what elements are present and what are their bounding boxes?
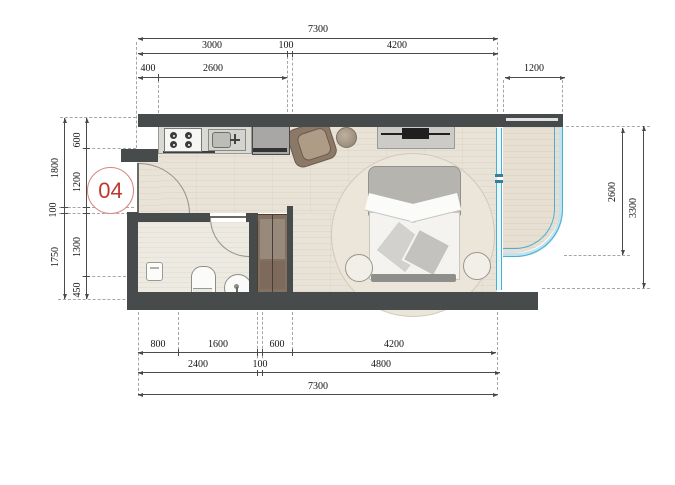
- dim-label: 400: [140, 64, 157, 74]
- burner-icon: [170, 141, 177, 148]
- floor-plan: 04 7300 3000 100 4200 400 2600 1200 1800…: [0, 0, 675, 485]
- extension-line: [60, 117, 136, 118]
- sliding-window-lower: [496, 182, 502, 290]
- heater-panel: [150, 267, 159, 269]
- dim-label: 7300: [307, 382, 329, 392]
- dim-tick: [262, 349, 263, 356]
- dim-label: 4200: [383, 340, 405, 350]
- dim-label: 600: [73, 132, 83, 149]
- dim-tick: [262, 369, 263, 376]
- wall-left-stub: [121, 149, 158, 162]
- dim-label: 4800: [370, 360, 392, 370]
- armchair-cushion: [296, 126, 333, 162]
- kitchen-sink: [208, 129, 246, 151]
- wall-top-balcony-slit: [506, 118, 558, 121]
- dim-tick: [83, 207, 90, 208]
- extension-line: [503, 80, 504, 112]
- dim-label: 800: [150, 340, 167, 350]
- gas-stove: [164, 128, 202, 152]
- refrigerator-handle: [253, 148, 287, 152]
- dim-tick: [83, 213, 90, 214]
- dim-label: 2600: [202, 64, 224, 74]
- dim-label: 100: [278, 41, 295, 51]
- wall-wardrobe-left: [249, 213, 257, 292]
- dim-label: 1200: [73, 171, 83, 193]
- bed-foot-runner: [371, 274, 456, 282]
- dim-label: 4200: [386, 41, 408, 51]
- dim-line-top-overall: [138, 38, 498, 39]
- extension-line: [287, 56, 288, 112]
- dim-label: 1600: [207, 340, 229, 350]
- dim-line-left-inner: [86, 118, 87, 299]
- dim-tick: [178, 349, 179, 356]
- dim-tick: [287, 50, 288, 57]
- extension-line: [58, 213, 134, 214]
- dim-tick: [257, 349, 258, 356]
- dim-label: 600: [269, 340, 286, 350]
- dim-label: 100: [252, 360, 269, 370]
- dim-label: 7300: [307, 25, 329, 35]
- tv-screen: [402, 128, 429, 139]
- dim-label: 2400: [187, 360, 209, 370]
- nightstand-left: [345, 254, 373, 282]
- entry-door-leaf: [137, 163, 139, 213]
- dim-label: 1750: [51, 246, 61, 268]
- dim-label: 1800: [51, 157, 61, 179]
- sink-bowl: [212, 132, 231, 148]
- wall-wardrobe-right: [287, 206, 293, 292]
- round-side-table: [336, 127, 357, 148]
- nightstand-right: [463, 252, 491, 280]
- dim-line-bottom-row1: [138, 352, 496, 353]
- water-heater: [146, 262, 163, 281]
- dim-tick: [83, 148, 90, 149]
- dim-label: 450: [73, 282, 83, 299]
- extension-line: [564, 255, 630, 256]
- sliding-window-upper: [496, 128, 502, 175]
- dim-tick: [257, 369, 258, 376]
- window-mullion: [495, 180, 503, 183]
- dim-tick: [158, 74, 159, 81]
- burner-icon: [185, 132, 192, 139]
- burner-icon: [185, 141, 192, 148]
- balcony-glazing-inner-line: [503, 127, 555, 249]
- dim-label: 100: [49, 202, 59, 219]
- dim-label: 3000: [201, 41, 223, 51]
- dim-tick: [83, 276, 90, 277]
- wardrobe: [257, 214, 290, 294]
- dim-line-bottom-row2: [138, 372, 500, 373]
- dim-label: 1300: [73, 236, 83, 258]
- extension-line: [562, 80, 563, 112]
- wall-left: [127, 212, 138, 294]
- dim-line-balcony-depth: [622, 128, 623, 255]
- extension-line: [292, 312, 293, 350]
- extension-line: [566, 126, 650, 127]
- extension-line: [497, 312, 498, 390]
- wall-bathroom-top-left: [127, 213, 210, 222]
- unit-number-badge: 04: [87, 167, 134, 214]
- dim-tick: [292, 50, 293, 57]
- dim-line-bottom-overall: [138, 394, 498, 395]
- burner-icon: [170, 132, 177, 139]
- dim-line-left-outer: [64, 118, 65, 299]
- faucet-bar: [230, 139, 240, 141]
- bathroom-door-leaf: [210, 216, 248, 218]
- dim-tick: [61, 207, 68, 208]
- dim-line-top-sub: [138, 77, 287, 78]
- extension-line: [542, 288, 650, 289]
- wall-top: [138, 114, 563, 127]
- wardrobe-divider: [272, 215, 273, 293]
- extension-line: [178, 312, 179, 350]
- dim-label: 3300: [629, 197, 639, 219]
- wall-bottom: [127, 292, 538, 310]
- dim-label: 1200: [523, 64, 545, 74]
- dim-line-balcony-width: [505, 77, 565, 78]
- window-mullion: [495, 174, 503, 177]
- dim-tick: [292, 349, 293, 356]
- extension-line: [136, 42, 137, 148]
- dim-line-top-segments: [138, 53, 498, 54]
- dim-label: 2600: [608, 181, 618, 203]
- dim-tick: [61, 213, 68, 214]
- dim-line-overall-depth: [643, 126, 644, 288]
